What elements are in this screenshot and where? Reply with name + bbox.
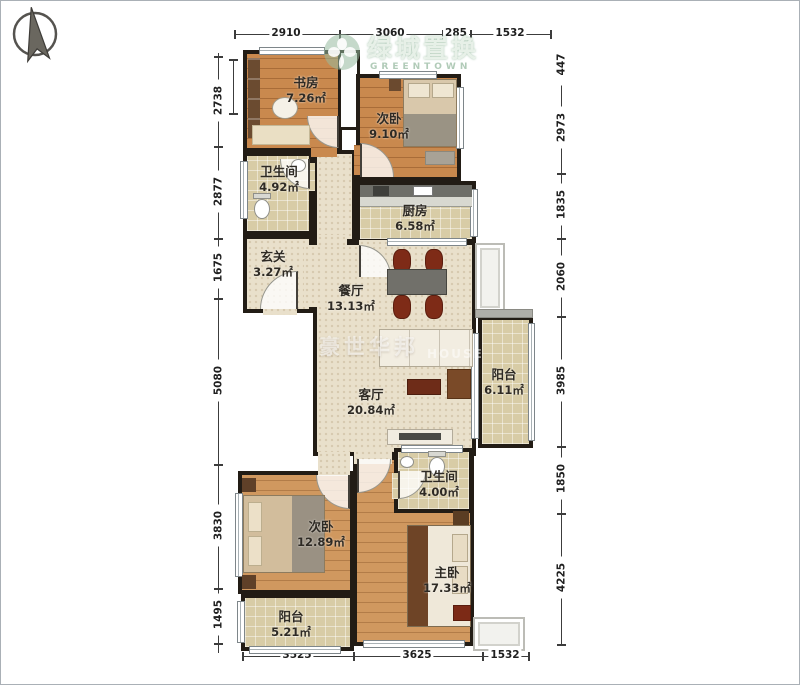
room-label-bath-top: 卫生间4.92㎡ <box>241 164 317 194</box>
dim-tick <box>550 30 552 39</box>
opening <box>317 235 347 247</box>
room-area: 7.26㎡ <box>268 91 344 105</box>
dim-tick <box>214 298 223 300</box>
room-area: 5.21㎡ <box>253 625 329 639</box>
window <box>259 47 325 55</box>
dim-tick <box>557 238 566 240</box>
dim-tick <box>214 588 223 590</box>
window <box>249 646 341 654</box>
nightstand <box>453 605 471 621</box>
dim-tick <box>557 644 566 646</box>
dim-label: 2060 <box>555 256 568 298</box>
dim-tick <box>528 652 530 661</box>
room-area: 6.58㎡ <box>377 219 453 233</box>
dim-tick <box>214 238 223 240</box>
room-area: 17.33㎡ <box>409 581 485 595</box>
room-label-dining: 餐厅13.13㎡ <box>313 283 389 313</box>
dining-table <box>387 269 447 295</box>
room-name: 卫生间 <box>241 164 317 180</box>
watermark-brand: 绿城置换 <box>367 29 479 65</box>
dim-label: 1532 <box>488 649 521 661</box>
dresser <box>425 151 455 165</box>
dining-chair <box>425 295 443 319</box>
room-name: 玄关 <box>235 249 311 265</box>
dim-label: 2877 <box>212 171 225 213</box>
room-label-bedroom-bottom: 次卧12.89㎡ <box>283 519 359 549</box>
dim-tick <box>242 652 244 661</box>
dim-tick <box>557 446 566 448</box>
corridor <box>313 150 356 243</box>
dim-tick <box>214 56 223 58</box>
watermark-brand: 豪世华邦 <box>319 331 419 361</box>
room-label-living: 客厅20.84㎡ <box>333 387 409 417</box>
kitchen-sink <box>413 186 433 196</box>
nightstand <box>242 575 256 589</box>
room-name: 主卧 <box>409 565 485 581</box>
dim-tick <box>214 464 223 466</box>
pillow <box>408 83 430 98</box>
dining-chair <box>393 295 411 319</box>
compass-icon <box>9 5 63 65</box>
window <box>456 87 464 149</box>
room-name: 餐厅 <box>313 283 389 299</box>
stove <box>373 186 389 196</box>
room-label-master: 主卧17.33㎡ <box>409 565 485 595</box>
dim-label: 1850 <box>555 458 568 500</box>
coffee-table <box>407 379 441 395</box>
room-label-bedroom-top: 次卧9.10㎡ <box>351 111 427 141</box>
watermark-agency: 豪世华邦 HOUSE <box>319 331 484 361</box>
room-area: 4.00㎡ <box>401 485 477 499</box>
nightstand <box>242 478 256 492</box>
dim-label: 3985 <box>555 360 568 402</box>
room-label-balcony-right: 阳台6.11㎡ <box>466 367 542 397</box>
room-area: 9.10㎡ <box>351 127 427 141</box>
room-name: 卫生间 <box>401 469 477 485</box>
dim-tick <box>557 173 566 175</box>
room-label-balcony-bottom: 阳台5.21㎡ <box>253 609 329 639</box>
dim-tick <box>482 652 484 661</box>
room-area: 3.27㎡ <box>235 265 311 279</box>
rug <box>252 125 310 145</box>
dim-tick <box>229 59 238 61</box>
window <box>235 493 243 577</box>
window <box>237 601 245 643</box>
watermark-subtitle: HOUSE <box>427 347 484 361</box>
watermark-greentown: 绿城置换 GREENTOWN <box>323 31 503 81</box>
room-name: 次卧 <box>283 519 359 535</box>
dim-tick <box>214 643 223 645</box>
dim-line-mini <box>233 59 234 113</box>
room-area: 4.92㎡ <box>241 180 317 194</box>
dim-label: 1495 <box>212 594 225 636</box>
dim-label: 1835 <box>555 184 568 226</box>
dim-tick <box>353 652 355 661</box>
dim-label: 2973 <box>555 107 568 149</box>
dim-label: 2738 <box>212 80 225 122</box>
room-name: 厨房 <box>377 203 453 219</box>
window <box>363 640 465 648</box>
watermark-subtitle: GREENTOWN <box>370 62 471 72</box>
window <box>387 238 467 246</box>
dim-label: 3830 <box>212 505 225 547</box>
ac-platform <box>473 617 525 651</box>
opening <box>318 452 350 476</box>
dim-label: 3625 <box>400 649 433 661</box>
nightstand <box>453 511 469 525</box>
greentown-logo-icon <box>323 33 361 71</box>
dim-label: 447 <box>555 44 568 86</box>
dim-tick <box>234 30 236 39</box>
dim-line-left <box>218 53 219 653</box>
pillow <box>452 534 468 562</box>
room-name: 阳台 <box>466 367 542 383</box>
room-name: 客厅 <box>333 387 409 403</box>
dim-tick <box>214 146 223 148</box>
dim-label: 5080 <box>212 360 225 402</box>
room-area: 20.84㎡ <box>333 403 409 417</box>
room-label-bath-bottom: 卫生间4.00㎡ <box>401 469 477 499</box>
toilet-bowl <box>254 199 270 219</box>
pillow <box>248 502 262 532</box>
room-name: 阳台 <box>253 609 329 625</box>
room-label-foyer: 玄关3.27㎡ <box>235 249 311 279</box>
bay-window <box>475 243 505 313</box>
room-area: 6.11㎡ <box>466 383 542 397</box>
pillow <box>432 83 454 98</box>
balcony-cap <box>475 309 533 318</box>
dim-label: 4225 <box>555 557 568 599</box>
dim-tick <box>557 316 566 318</box>
pillow <box>248 536 262 566</box>
room-label-kitchen: 厨房6.58㎡ <box>377 203 453 233</box>
room-area: 12.89㎡ <box>283 535 359 549</box>
dim-tick <box>229 113 238 115</box>
dim-label: 1675 <box>212 247 225 289</box>
dim-label: 2910 <box>269 27 302 39</box>
sink <box>400 456 414 468</box>
opening <box>311 147 337 157</box>
room-name: 次卧 <box>351 111 427 127</box>
floorplan-canvas: 书房7.26㎡ 次卧9.10㎡ 卫生间4.92㎡ 厨房6.58㎡ 玄关3.27㎡… <box>0 0 800 685</box>
tv <box>399 433 441 440</box>
room-area: 13.13㎡ <box>313 299 389 313</box>
dim-tick <box>557 513 566 515</box>
